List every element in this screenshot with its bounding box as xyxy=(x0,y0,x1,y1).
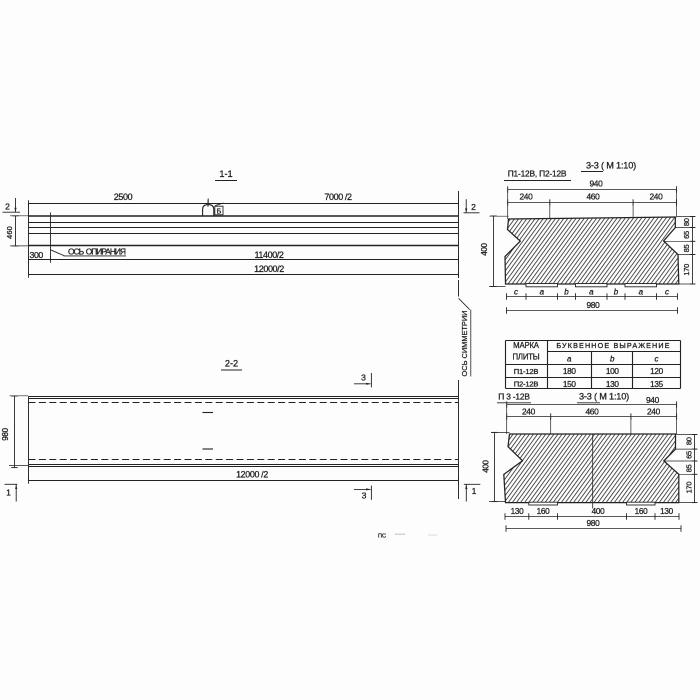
svg-text:П1-12В: П1-12В xyxy=(514,367,539,376)
svg-text:c: c xyxy=(665,287,669,296)
svg-text:400: 400 xyxy=(480,242,489,255)
svg-text:100: 100 xyxy=(606,367,620,376)
svg-text:65: 65 xyxy=(684,451,693,459)
svg-text:a: a xyxy=(589,287,594,296)
svg-text:240: 240 xyxy=(649,192,663,202)
svg-text:150: 150 xyxy=(563,380,577,389)
svg-text:240: 240 xyxy=(647,407,661,417)
svg-text:460: 460 xyxy=(586,192,600,202)
svg-text:85: 85 xyxy=(684,465,693,473)
svg-text:П 3 -12В: П 3 -12В xyxy=(498,392,530,402)
svg-text:170: 170 xyxy=(682,264,691,276)
svg-text:c: c xyxy=(655,354,659,363)
svg-text:240: 240 xyxy=(522,407,536,417)
svg-text:300: 300 xyxy=(30,250,44,260)
svg-text:940: 940 xyxy=(646,395,660,405)
svg-text:11400/2: 11400/2 xyxy=(254,250,283,260)
svg-text:12000 /2: 12000 /2 xyxy=(236,470,268,480)
svg-text:160: 160 xyxy=(537,507,551,516)
svg-text:1-1: 1-1 xyxy=(219,169,232,179)
svg-text:80: 80 xyxy=(684,437,693,445)
svg-text:170: 170 xyxy=(684,482,693,494)
svg-text:980: 980 xyxy=(586,518,600,528)
svg-text:2-2: 2-2 xyxy=(225,359,238,369)
svg-text:135: 135 xyxy=(650,380,664,389)
svg-text:980: 980 xyxy=(586,300,600,310)
svg-text:130: 130 xyxy=(660,507,674,516)
svg-text:ПЛИТЫ: ПЛИТЫ xyxy=(513,352,540,361)
svg-text:240: 240 xyxy=(519,192,533,202)
svg-text:b: b xyxy=(564,287,569,296)
svg-text:12000/2: 12000/2 xyxy=(254,264,284,274)
svg-text:85: 85 xyxy=(682,245,691,253)
svg-text:b: b xyxy=(614,287,619,296)
svg-text:940: 940 xyxy=(589,179,603,189)
svg-text:БУКВЕННОЕ ВЫРАЖЕНИЕ: БУКВЕННОЕ ВЫРАЖЕНИЕ xyxy=(556,341,670,350)
svg-text:400: 400 xyxy=(592,507,606,516)
svg-text:ОСЬ ОПИРАНИЯ: ОСЬ ОПИРАНИЯ xyxy=(68,246,126,256)
svg-text:a: a xyxy=(567,354,572,363)
svg-text:2: 2 xyxy=(5,202,10,212)
svg-text:80: 80 xyxy=(682,218,691,226)
svg-text:П1-12В, П2-12В: П1-12В, П2-12В xyxy=(508,169,567,179)
svg-text:7000 /2: 7000 /2 xyxy=(324,192,352,202)
svg-text:130: 130 xyxy=(511,507,525,516)
svg-text:460: 460 xyxy=(5,226,14,239)
svg-text:b: b xyxy=(610,354,615,363)
svg-text:1: 1 xyxy=(472,487,477,496)
svg-text:c: c xyxy=(514,287,518,296)
svg-text:ПС: ПС xyxy=(378,534,386,540)
svg-text:МАРКА: МАРКА xyxy=(513,341,540,350)
svg-text:3-3 ( М 1:10): 3-3 ( М 1:10) xyxy=(586,161,636,171)
svg-text:3-3 ( М 1:10): 3-3 ( М 1:10) xyxy=(579,392,629,402)
svg-text:460: 460 xyxy=(585,407,599,417)
svg-text:180: 180 xyxy=(563,367,577,376)
svg-text:2500: 2500 xyxy=(114,192,133,202)
svg-text:3: 3 xyxy=(362,490,367,500)
svg-text:ОСЬ СИММЕТРИИ: ОСЬ СИММЕТРИИ xyxy=(460,311,469,377)
svg-text:980: 980 xyxy=(1,427,10,440)
svg-text:130: 130 xyxy=(606,380,620,389)
svg-text:160: 160 xyxy=(635,507,649,516)
svg-text:400: 400 xyxy=(481,459,490,472)
svg-text:120: 120 xyxy=(650,367,664,376)
svg-text:2: 2 xyxy=(471,202,476,212)
svg-text:П2-12В: П2-12В xyxy=(514,380,539,389)
svg-text:a: a xyxy=(639,287,644,296)
svg-text:3: 3 xyxy=(361,373,366,383)
svg-text:Б: Б xyxy=(217,208,222,215)
svg-text:65: 65 xyxy=(682,231,691,239)
svg-text:a: a xyxy=(540,287,545,296)
svg-text:1: 1 xyxy=(6,489,11,498)
